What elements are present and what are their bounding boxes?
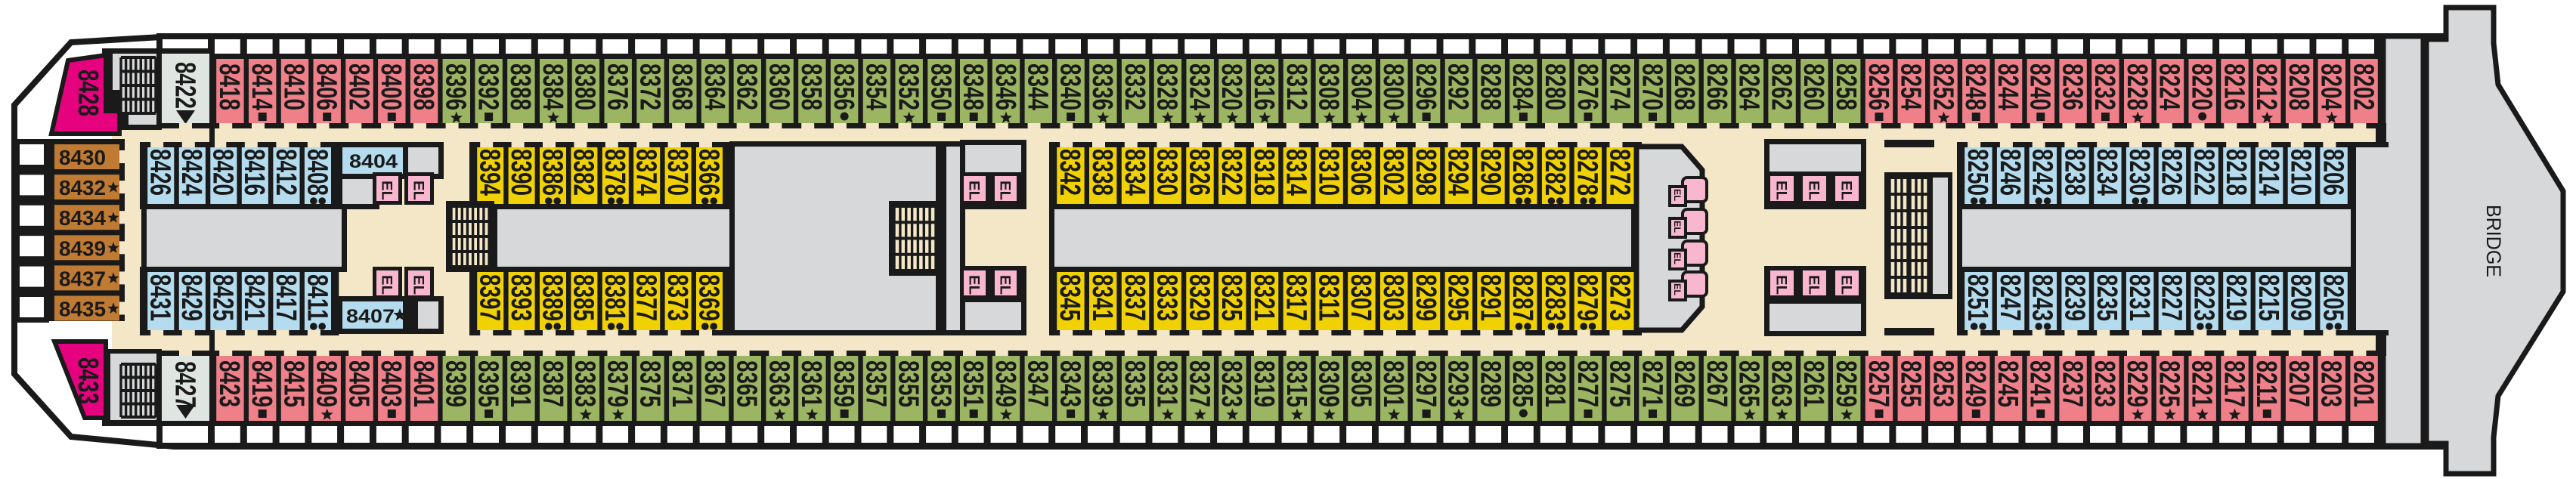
svg-text:8428: 8428 — [72, 70, 104, 116]
svg-text:8435: 8435 — [59, 298, 106, 321]
svg-text:8317: 8317 — [1280, 274, 1312, 321]
svg-text:8231: 8231 — [2123, 274, 2155, 321]
svg-text:8288: 8288 — [1475, 63, 1506, 110]
svg-text:8368: 8368 — [666, 63, 698, 110]
svg-text:8394: 8394 — [474, 149, 506, 196]
svg-text:8383: 8383 — [569, 360, 601, 407]
svg-text:8404: 8404 — [349, 151, 398, 172]
svg-text:8326: 8326 — [1183, 149, 1215, 196]
svg-text:8271: 8271 — [1636, 360, 1667, 407]
svg-text:8345: 8345 — [1054, 274, 1085, 321]
svg-text:8257: 8257 — [1862, 360, 1894, 407]
svg-text:8358: 8358 — [795, 63, 827, 110]
svg-text:8237: 8237 — [2056, 360, 2088, 407]
svg-text:8254: 8254 — [1895, 63, 1927, 110]
svg-text:8427: 8427 — [169, 361, 200, 408]
svg-text:8334: 8334 — [1119, 149, 1150, 196]
svg-text:8287: 8287 — [1506, 274, 1538, 321]
svg-text:8406: 8406 — [311, 63, 342, 110]
svg-text:BRIDGE: BRIDGE — [2482, 205, 2505, 277]
svg-text:8357: 8357 — [860, 360, 892, 407]
svg-text:8392: 8392 — [472, 63, 503, 110]
svg-text:8425: 8425 — [207, 274, 239, 321]
svg-text:8236: 8236 — [2056, 63, 2088, 110]
svg-text:8429: 8429 — [175, 274, 207, 321]
svg-text:EL: EL — [379, 275, 395, 295]
svg-text:8250: 8250 — [1961, 149, 1993, 196]
svg-text:8353: 8353 — [924, 360, 956, 407]
svg-text:8422: 8422 — [169, 62, 200, 109]
svg-text:8388: 8388 — [504, 63, 536, 110]
svg-text:8305: 8305 — [1345, 360, 1376, 407]
svg-text:8405: 8405 — [342, 360, 374, 407]
svg-text:8407: 8407 — [346, 306, 395, 327]
svg-text:8303: 8303 — [1377, 274, 1409, 321]
svg-text:8206: 8206 — [2317, 149, 2348, 196]
svg-text:EL: EL — [966, 181, 982, 200]
svg-text:8253: 8253 — [1927, 360, 1958, 407]
svg-text:8233: 8233 — [2088, 360, 2120, 407]
svg-text:8304: 8304 — [1345, 63, 1376, 110]
svg-text:8277: 8277 — [1571, 360, 1603, 407]
svg-text:8266: 8266 — [1701, 63, 1732, 110]
svg-text:8322: 8322 — [1215, 149, 1247, 196]
svg-text:8410: 8410 — [278, 63, 310, 110]
svg-text:8341: 8341 — [1086, 274, 1118, 321]
svg-text:8328: 8328 — [1151, 63, 1183, 110]
svg-text:8330: 8330 — [1151, 149, 1183, 196]
svg-text:8361: 8361 — [795, 360, 827, 407]
svg-text:EL: EL — [997, 275, 1013, 295]
svg-text:8289: 8289 — [1475, 360, 1506, 407]
svg-text:EL: EL — [379, 181, 395, 200]
svg-text:8247: 8247 — [1994, 274, 2026, 321]
svg-text:8227: 8227 — [2156, 274, 2187, 321]
svg-text:8337: 8337 — [1119, 274, 1150, 321]
svg-text:8240: 8240 — [2024, 63, 2056, 110]
svg-text:8431: 8431 — [144, 274, 176, 321]
svg-text:EL: EL — [410, 181, 426, 200]
svg-text:8379: 8379 — [602, 360, 633, 407]
svg-text:8397: 8397 — [474, 274, 506, 321]
svg-text:8201: 8201 — [2347, 360, 2379, 407]
svg-text:8220: 8220 — [2186, 63, 2218, 110]
svg-text:8382: 8382 — [568, 149, 599, 196]
svg-text:8242: 8242 — [2026, 149, 2058, 196]
svg-text:8384: 8384 — [537, 63, 568, 110]
svg-text:8418: 8418 — [213, 63, 245, 110]
svg-text:8256: 8256 — [1862, 63, 1894, 110]
svg-text:8339: 8339 — [1086, 360, 1118, 407]
svg-text:8207: 8207 — [2283, 360, 2314, 407]
svg-text:8402: 8402 — [342, 63, 374, 110]
svg-text:8371: 8371 — [666, 360, 698, 407]
svg-text:8395: 8395 — [472, 360, 503, 407]
svg-text:8335: 8335 — [1119, 360, 1150, 407]
svg-text:8432: 8432 — [59, 176, 106, 199]
svg-text:8260: 8260 — [1797, 63, 1829, 110]
svg-text:8248: 8248 — [1959, 63, 1991, 110]
svg-text:8246: 8246 — [1994, 149, 2026, 196]
svg-text:8372: 8372 — [633, 63, 665, 110]
svg-text:EL: EL — [1672, 283, 1683, 295]
svg-text:8423: 8423 — [213, 360, 245, 407]
svg-text:8338: 8338 — [1086, 149, 1118, 196]
svg-text:EL: EL — [1672, 252, 1683, 264]
svg-text:8356: 8356 — [828, 63, 859, 110]
svg-text:8439: 8439 — [59, 236, 106, 260]
svg-text:8298: 8298 — [1410, 149, 1441, 196]
svg-text:8412: 8412 — [270, 149, 302, 196]
svg-text:8241: 8241 — [2024, 360, 2056, 407]
svg-text:8362: 8362 — [731, 63, 763, 110]
svg-text:8270: 8270 — [1636, 63, 1667, 110]
svg-text:8269: 8269 — [1668, 360, 1700, 407]
svg-text:8307: 8307 — [1345, 274, 1376, 321]
svg-text:8342: 8342 — [1054, 149, 1085, 196]
svg-text:8239: 8239 — [2058, 274, 2090, 321]
svg-text:8291: 8291 — [1474, 274, 1506, 321]
svg-text:8336: 8336 — [1086, 63, 1118, 110]
svg-text:8244: 8244 — [1992, 63, 2023, 110]
svg-text:8316: 8316 — [1248, 63, 1280, 110]
svg-text:EL: EL — [1773, 181, 1789, 200]
svg-text:8415: 8415 — [278, 360, 310, 407]
svg-text:8230: 8230 — [2123, 149, 2155, 196]
svg-text:8375: 8375 — [633, 360, 665, 407]
svg-text:8285: 8285 — [1506, 360, 1538, 407]
svg-text:8210: 8210 — [2285, 149, 2317, 196]
svg-text:8389: 8389 — [536, 274, 568, 321]
svg-text:8262: 8262 — [1765, 63, 1797, 110]
svg-text:8299: 8299 — [1410, 274, 1441, 321]
svg-text:8318: 8318 — [1248, 149, 1280, 196]
svg-text:8217: 8217 — [2218, 360, 2249, 407]
svg-text:8403: 8403 — [375, 360, 407, 407]
svg-text:8297: 8297 — [1410, 360, 1441, 407]
svg-text:8399: 8399 — [440, 360, 472, 407]
svg-text:8252: 8252 — [1927, 63, 1958, 110]
svg-text:8234: 8234 — [2091, 149, 2122, 196]
svg-text:8329: 8329 — [1183, 274, 1215, 321]
svg-text:EL: EL — [1672, 189, 1683, 201]
svg-text:8229: 8229 — [2121, 360, 2153, 407]
svg-text:8308: 8308 — [1313, 63, 1345, 110]
svg-text:8263: 8263 — [1765, 360, 1797, 407]
svg-text:8202: 8202 — [2347, 63, 2379, 110]
svg-text:8251: 8251 — [1961, 274, 1993, 321]
svg-text:EL: EL — [1672, 221, 1683, 233]
svg-text:8294: 8294 — [1442, 149, 1474, 196]
svg-text:8369: 8369 — [692, 274, 724, 321]
svg-text:EL: EL — [1806, 181, 1822, 200]
svg-text:EL: EL — [1838, 275, 1854, 295]
svg-text:8360: 8360 — [763, 63, 794, 110]
svg-text:8211: 8211 — [2250, 360, 2282, 407]
svg-text:8281: 8281 — [1539, 360, 1571, 407]
svg-text:8314: 8314 — [1280, 149, 1312, 196]
svg-text:8282: 8282 — [1539, 149, 1571, 196]
svg-text:8333: 8333 — [1151, 274, 1183, 321]
svg-text:EL: EL — [1806, 275, 1822, 295]
svg-text:8386: 8386 — [536, 149, 568, 196]
svg-text:8411: 8411 — [301, 274, 333, 321]
svg-text:8221: 8221 — [2186, 360, 2218, 407]
svg-text:8278: 8278 — [1571, 149, 1603, 196]
svg-text:8223: 8223 — [2187, 274, 2219, 321]
svg-text:8400: 8400 — [375, 63, 407, 110]
svg-text:8238: 8238 — [2058, 149, 2090, 196]
svg-text:8302: 8302 — [1377, 149, 1409, 196]
svg-text:8373: 8373 — [661, 274, 693, 321]
svg-text:8343: 8343 — [1054, 360, 1085, 407]
svg-text:8349: 8349 — [989, 360, 1021, 407]
svg-text:8367: 8367 — [698, 360, 730, 407]
svg-text:8437: 8437 — [59, 267, 106, 290]
svg-text:8258: 8258 — [1830, 63, 1862, 110]
svg-text:8212: 8212 — [2250, 63, 2282, 110]
svg-text:8350: 8350 — [924, 63, 956, 110]
svg-text:8228: 8228 — [2121, 63, 2153, 110]
svg-text:8309: 8309 — [1313, 360, 1345, 407]
svg-text:8259: 8259 — [1830, 360, 1862, 407]
svg-text:8320: 8320 — [1215, 63, 1247, 110]
svg-text:8280: 8280 — [1539, 63, 1571, 110]
svg-text:8286: 8286 — [1506, 149, 1538, 196]
svg-text:8387: 8387 — [537, 360, 568, 407]
svg-text:8315: 8315 — [1280, 360, 1312, 407]
svg-text:8245: 8245 — [1992, 360, 2023, 407]
svg-text:8366: 8366 — [692, 149, 724, 196]
svg-text:8398: 8398 — [407, 63, 439, 110]
svg-text:EL: EL — [997, 181, 1013, 200]
svg-text:8370: 8370 — [661, 149, 693, 196]
svg-text:8416: 8416 — [238, 149, 270, 196]
svg-text:8279: 8279 — [1571, 274, 1603, 321]
svg-text:8363: 8363 — [763, 360, 794, 407]
svg-text:8378: 8378 — [599, 149, 630, 196]
svg-text:8273: 8273 — [1604, 274, 1636, 321]
svg-text:8421: 8421 — [238, 274, 270, 321]
svg-text:8296: 8296 — [1410, 63, 1441, 110]
svg-text:8261: 8261 — [1797, 360, 1829, 407]
svg-text:8417: 8417 — [270, 274, 302, 321]
svg-text:8204: 8204 — [2315, 63, 2347, 110]
svg-text:8426: 8426 — [144, 149, 176, 196]
svg-text:8381: 8381 — [599, 274, 630, 321]
svg-text:8275: 8275 — [1604, 360, 1636, 407]
svg-text:8222: 8222 — [2187, 149, 2219, 196]
svg-text:8312: 8312 — [1280, 63, 1312, 110]
svg-text:8324: 8324 — [1184, 63, 1215, 110]
svg-text:8226: 8226 — [2156, 149, 2187, 196]
svg-text:8272: 8272 — [1604, 149, 1636, 196]
svg-text:8321: 8321 — [1248, 274, 1280, 321]
svg-text:8203: 8203 — [2315, 360, 2347, 407]
svg-text:8348: 8348 — [957, 63, 989, 110]
svg-text:8310: 8310 — [1312, 149, 1344, 196]
svg-text:8325: 8325 — [1215, 274, 1247, 321]
svg-text:8332: 8332 — [1119, 63, 1150, 110]
svg-text:8235: 8235 — [2091, 274, 2122, 321]
svg-text:8364: 8364 — [698, 63, 730, 110]
svg-text:8219: 8219 — [2220, 274, 2252, 321]
svg-text:8209: 8209 — [2285, 274, 2317, 321]
svg-text:8205: 8205 — [2317, 274, 2348, 321]
svg-text:8352: 8352 — [893, 63, 924, 110]
svg-text:8215: 8215 — [2252, 274, 2284, 321]
svg-text:8346: 8346 — [989, 63, 1021, 110]
svg-text:8380: 8380 — [569, 63, 601, 110]
svg-text:8214: 8214 — [2252, 149, 2284, 196]
svg-text:8347: 8347 — [1022, 360, 1054, 407]
svg-text:8414: 8414 — [246, 63, 277, 110]
svg-text:8355: 8355 — [893, 360, 924, 407]
svg-text:8249: 8249 — [1959, 360, 1991, 407]
svg-text:8283: 8283 — [1539, 274, 1571, 321]
svg-text:8284: 8284 — [1506, 63, 1538, 110]
svg-text:8216: 8216 — [2218, 63, 2249, 110]
svg-text:8401: 8401 — [407, 360, 439, 407]
svg-text:8264: 8264 — [1733, 63, 1765, 110]
svg-text:8344: 8344 — [1022, 63, 1054, 110]
svg-text:EL: EL — [1773, 275, 1789, 295]
svg-text:8290: 8290 — [1474, 149, 1506, 196]
svg-text:8420: 8420 — [207, 149, 239, 196]
svg-text:8390: 8390 — [505, 149, 537, 196]
svg-text:8295: 8295 — [1442, 274, 1474, 321]
svg-text:8301: 8301 — [1377, 360, 1409, 407]
svg-text:8391: 8391 — [504, 360, 536, 407]
svg-text:8396: 8396 — [440, 63, 472, 110]
svg-text:8376: 8376 — [602, 63, 633, 110]
svg-text:8430: 8430 — [59, 146, 106, 169]
svg-text:8306: 8306 — [1345, 149, 1376, 196]
svg-text:8225: 8225 — [2153, 360, 2185, 407]
svg-text:8419: 8419 — [246, 360, 277, 407]
svg-text:8311: 8311 — [1312, 274, 1344, 321]
svg-text:8274: 8274 — [1604, 63, 1636, 110]
svg-text:8408: 8408 — [301, 149, 333, 196]
svg-text:8327: 8327 — [1184, 360, 1215, 407]
svg-text:8267: 8267 — [1701, 360, 1732, 407]
svg-text:8424: 8424 — [175, 149, 207, 196]
svg-text:8265: 8265 — [1733, 360, 1765, 407]
svg-text:8323: 8323 — [1215, 360, 1247, 407]
svg-text:8276: 8276 — [1571, 63, 1603, 110]
svg-text:8268: 8268 — [1668, 63, 1700, 110]
svg-text:8434: 8434 — [59, 206, 106, 230]
svg-text:8208: 8208 — [2283, 63, 2314, 110]
svg-text:8351: 8351 — [957, 360, 989, 407]
svg-text:8255: 8255 — [1895, 360, 1927, 407]
svg-text:8374: 8374 — [630, 149, 662, 196]
svg-text:8232: 8232 — [2088, 63, 2120, 110]
svg-text:8224: 8224 — [2153, 63, 2185, 110]
svg-text:8300: 8300 — [1377, 63, 1409, 110]
svg-text:8340: 8340 — [1054, 63, 1085, 110]
svg-text:8359: 8359 — [828, 360, 859, 407]
svg-text:8293: 8293 — [1442, 360, 1474, 407]
svg-text:8354: 8354 — [860, 63, 892, 110]
svg-text:8433: 8433 — [72, 357, 104, 404]
svg-text:8409: 8409 — [311, 360, 342, 407]
svg-text:8218: 8218 — [2220, 149, 2252, 196]
svg-text:EL: EL — [1838, 181, 1854, 200]
svg-text:8377: 8377 — [630, 274, 662, 321]
svg-text:8292: 8292 — [1442, 63, 1474, 110]
svg-text:8393: 8393 — [505, 274, 537, 321]
svg-text:EL: EL — [410, 275, 426, 295]
svg-text:8331: 8331 — [1151, 360, 1183, 407]
svg-text:8385: 8385 — [568, 274, 599, 321]
svg-text:8319: 8319 — [1248, 360, 1280, 407]
svg-text:8243: 8243 — [2026, 274, 2058, 321]
svg-text:8365: 8365 — [731, 360, 763, 407]
svg-text:EL: EL — [966, 275, 982, 295]
